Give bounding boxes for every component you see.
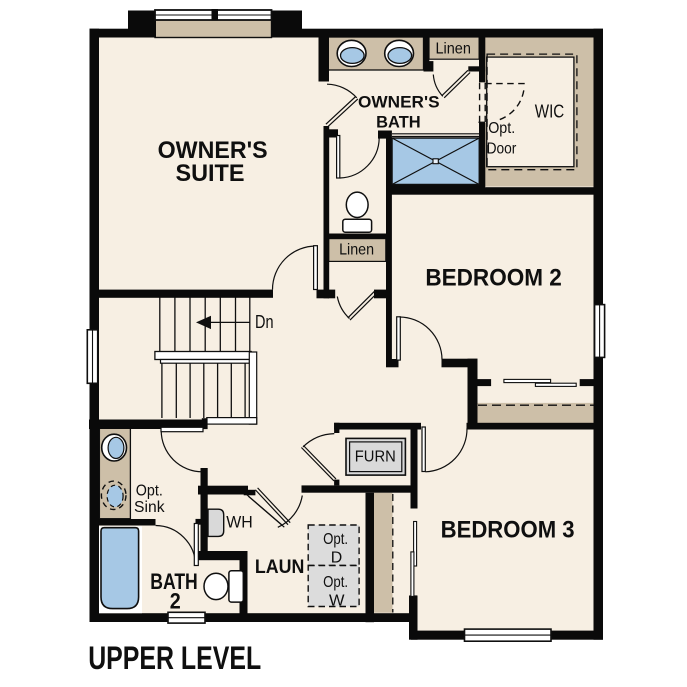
svg-text:Opt.: Opt. [136,482,163,499]
svg-text:W: W [329,593,345,610]
svg-text:OWNER'S: OWNER'S [358,92,440,111]
svg-text:LAUN: LAUN [255,556,305,578]
svg-text:BEDROOM 2: BEDROOM 2 [425,264,562,291]
svg-text:Opt.: Opt. [323,531,348,548]
svg-text:Dn: Dn [255,312,274,332]
svg-text:Opt.: Opt. [323,574,348,591]
svg-text:Linen: Linen [435,41,471,58]
svg-text:FURN: FURN [355,448,396,465]
svg-text:WIC: WIC [535,102,565,122]
svg-text:Linen: Linen [339,242,374,259]
svg-text:Opt.: Opt. [488,120,515,137]
svg-text:Door: Door [487,141,517,158]
svg-text:WH: WH [226,512,253,531]
svg-text:BATH: BATH [376,113,421,132]
svg-text:BEDROOM 3: BEDROOM 3 [441,516,575,543]
svg-text:SUITE: SUITE [176,160,245,187]
svg-text:Sink: Sink [134,499,165,516]
svg-text:UPPER LEVEL: UPPER LEVEL [88,640,261,676]
svg-text:D: D [331,549,343,566]
svg-text:2: 2 [170,588,181,613]
